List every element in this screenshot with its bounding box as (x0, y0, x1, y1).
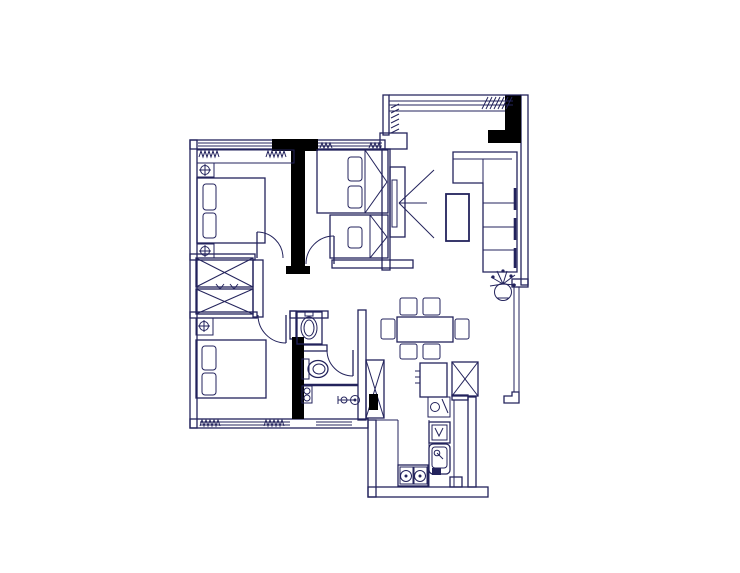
storage-cabinet-crossed (196, 258, 253, 287)
bath-east-wall (358, 310, 366, 420)
blanket-fold (370, 215, 387, 237)
tv-view-line (399, 170, 434, 203)
double-bed (197, 178, 265, 243)
wall-hatch (391, 104, 399, 133)
pillow (203, 184, 216, 210)
double-bed (196, 340, 266, 398)
toilet-bowl-inner (313, 364, 325, 374)
fixture-dial (431, 403, 440, 412)
blanket-fold (365, 150, 387, 182)
service-counter (415, 363, 447, 397)
pillow (202, 373, 216, 395)
kitchen-west-wall (368, 420, 376, 497)
closet-east-wall (253, 260, 263, 317)
chair (381, 319, 395, 339)
potted-plant (490, 269, 516, 300)
water-fixture (428, 397, 450, 417)
kitchen-south-wall (368, 487, 488, 497)
tv-unit (390, 167, 434, 238)
hob-inner (432, 425, 447, 440)
bedroom1-door (257, 232, 283, 258)
two-burner-stove (398, 465, 428, 486)
curtain-icon (266, 151, 286, 157)
blanket-fold (365, 182, 387, 213)
chair (423, 344, 440, 359)
shower-dot (354, 399, 357, 402)
kitchen-step (450, 477, 462, 487)
l-shaped-sofa (453, 152, 517, 272)
bedroom2-north-window (318, 143, 382, 148)
living-bay-window (389, 95, 521, 133)
floor-plan-canvas (0, 0, 740, 573)
coffee-table (446, 194, 469, 241)
window-foot (504, 392, 519, 403)
bedroom2-south-wall (332, 260, 413, 268)
floor-plan-drawing (0, 0, 740, 573)
door-swing-arc (257, 232, 283, 258)
bay-west-jamb (383, 95, 389, 135)
plant-dot (512, 283, 515, 286)
bath-niche-wall (303, 345, 327, 351)
toilet (302, 359, 328, 379)
bedroom3-south-window (200, 420, 290, 426)
dining-table (397, 317, 453, 342)
chair (455, 319, 469, 339)
dining-area (381, 298, 469, 359)
pillow (202, 346, 216, 370)
plant-dot (491, 275, 494, 278)
burner-dot (405, 475, 408, 478)
refrigerator (452, 362, 478, 396)
walls (190, 95, 528, 497)
basin-bowl-inner (304, 320, 314, 336)
pillow (348, 227, 362, 248)
storage-cabinet-crossed (196, 289, 253, 314)
pillow (348, 186, 362, 208)
living-room (446, 152, 517, 301)
door-swing-arc (327, 350, 353, 376)
pillow (203, 213, 216, 238)
counter-outline (420, 363, 447, 397)
burner-dot (419, 475, 422, 478)
fixture-line (442, 399, 448, 413)
nightstand-lamp (197, 244, 214, 258)
third-bedroom (196, 318, 266, 398)
chair (423, 298, 440, 315)
hallway-closets (196, 258, 253, 314)
sink (429, 444, 450, 475)
chair (400, 298, 417, 315)
nightstand-lamp (197, 163, 214, 177)
hob-unit (429, 422, 450, 443)
upper-bed (317, 150, 388, 213)
plant-dot (509, 274, 512, 277)
blanket-fold (370, 237, 387, 258)
bed-outline (196, 340, 266, 398)
lower-bed (330, 215, 388, 258)
plant-dot (501, 269, 504, 272)
bath-west-wall (290, 311, 296, 339)
east-wall (521, 95, 528, 285)
curtain-icon (199, 151, 219, 157)
tv-view-line (399, 203, 434, 238)
flue-fill (369, 394, 378, 410)
heater-knob (304, 395, 310, 401)
bathroom-south-window (316, 422, 352, 425)
nightstand-lamp (196, 318, 213, 335)
kitchen-east-wall (468, 397, 476, 487)
second-bedroom (317, 150, 388, 258)
bearing-wall-foot (286, 266, 310, 274)
kitchen (366, 360, 454, 487)
bedroom3-door (258, 315, 286, 343)
bed-outline (330, 215, 388, 258)
sink-drainer (432, 468, 441, 475)
flue-duct (366, 360, 384, 418)
shower-head (338, 396, 360, 405)
hob-mark (435, 428, 443, 436)
master-bedroom (197, 150, 294, 258)
tv-screen (392, 180, 397, 227)
chair (400, 344, 417, 359)
bathroom-door (327, 350, 353, 376)
east-side-window (504, 287, 519, 403)
pillow (348, 157, 362, 181)
door-swing-arc (258, 315, 286, 343)
sofa-outline (453, 152, 517, 272)
bedroom1-south-wall (190, 254, 255, 260)
bedroom3-north-wall (190, 312, 257, 318)
heater-knob (304, 388, 310, 394)
bedroom2-east-wall (382, 149, 390, 270)
sink-basin (432, 447, 447, 468)
bearing-wall-divider (291, 149, 305, 266)
